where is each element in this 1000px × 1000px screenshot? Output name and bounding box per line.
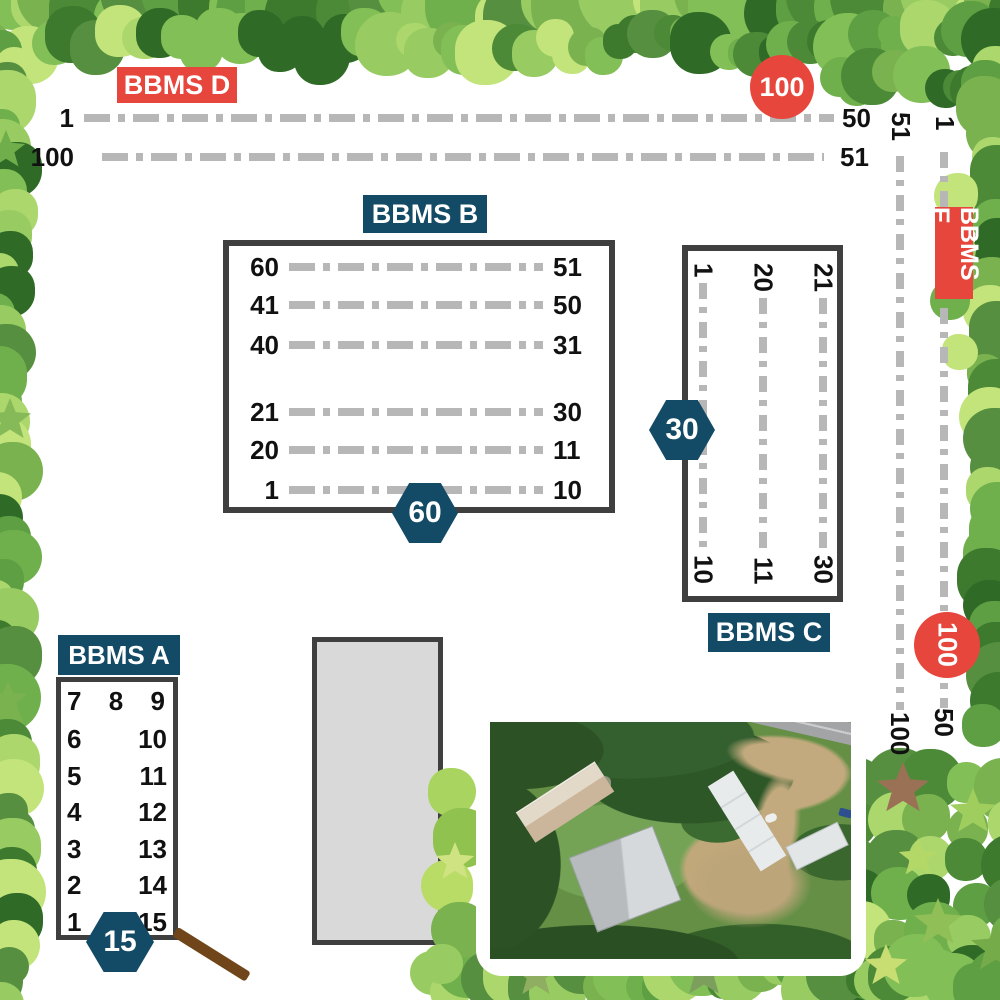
foliage-blob: [0, 0, 47, 30]
foliage-blob: [959, 387, 1000, 444]
foliage-blob: [475, 0, 532, 49]
foliage-plant-icon: [913, 898, 963, 948]
row-end-number: 30: [553, 397, 601, 428]
foliage-blob: [872, 50, 914, 92]
foliage-blob: [967, 354, 1000, 392]
bbms-d-row1-end: 50: [842, 104, 871, 132]
foliage-blob: [710, 34, 746, 70]
foliage-blob: [180, 29, 222, 71]
row-end-number: 11: [553, 435, 601, 466]
foliage-blob: [0, 378, 22, 426]
foliage-blob: [0, 982, 24, 1000]
foliage-blob: [813, 13, 878, 78]
bbms-a-top-row: 7 8 9: [67, 686, 165, 717]
aerial-barn: [516, 761, 614, 842]
foliage-blob: [0, 626, 42, 687]
row-end-number: 51: [553, 252, 601, 283]
plot-number: 11: [140, 761, 168, 792]
foliage-blob: [94, 0, 154, 49]
foliage-plant-icon: [864, 944, 908, 988]
foliage-blob: [348, 0, 423, 31]
foliage-blob: [883, 934, 946, 997]
bbms-d-row1-start: 1: [26, 104, 74, 132]
foliage-blob: [492, 24, 539, 71]
bbms-b-row: 40 31: [237, 331, 601, 359]
foliage-blob: [0, 21, 14, 79]
foliage-blob: [871, 987, 921, 1000]
aerial-photo: [490, 722, 851, 959]
foliage-blob: [895, 62, 924, 91]
foliage-plant-icon: [898, 838, 938, 878]
bbms-b-row: 20 11: [237, 436, 601, 464]
row-end-number: 50: [553, 290, 601, 321]
foliage-blob: [985, 989, 1000, 1000]
bbms-d-row2-line: [102, 153, 824, 161]
foliage-blob: [441, 25, 491, 75]
foliage-blob: [0, 818, 41, 876]
foliage-blob: [0, 559, 24, 603]
foliage-blob: [950, 65, 998, 113]
foliage-blob: [49, 0, 134, 56]
foliage-blob: [953, 883, 997, 927]
plot-number: 4: [67, 797, 81, 828]
foliage-blob: [433, 22, 470, 59]
foliage-blob: [0, 109, 20, 149]
foliage-blob: [209, 0, 263, 36]
foliage-blob: [838, 71, 873, 106]
foliage-blob: [215, 13, 265, 63]
plot-number: 3: [67, 834, 81, 865]
foliage-blob: [968, 338, 1000, 376]
foliage-blob: [968, 359, 1000, 420]
foliage-plant-icon: [970, 922, 1000, 974]
foliage-blob: [868, 950, 920, 1000]
foliage-blob: [969, 301, 1000, 362]
foliage-blob: [947, 762, 988, 803]
foliage-blob: [744, 0, 812, 46]
plot-number: 10: [138, 724, 167, 755]
foliage-blob: [909, 836, 953, 880]
foliage-blob: [238, 10, 285, 57]
foliage-blob: [423, 944, 463, 984]
column-end-number: 10: [688, 555, 719, 584]
foliage-blob: [820, 57, 860, 97]
bbms-d-row2-start: 100: [22, 143, 74, 171]
bbms-e-100-marker: 100: [914, 612, 980, 678]
bbms-e-col1-start: 51: [885, 112, 916, 141]
foliage-blob: [100, 0, 193, 35]
foliage-blob: [956, 76, 1000, 137]
foliage-blob: [278, 16, 325, 63]
foliage-blob: [0, 62, 27, 105]
foliage-blob: [0, 393, 30, 451]
foliage-plant-icon: [949, 788, 997, 836]
foliage-blob: [161, 15, 205, 59]
foliage-blob: [963, 408, 1000, 470]
foliage-blob: [355, 12, 419, 76]
foliage-blob: [947, 808, 988, 849]
column-start-number: 1: [688, 263, 719, 277]
row-start-number: 60: [237, 252, 279, 283]
plot-number: 7: [67, 686, 81, 717]
foliage-blob: [0, 620, 16, 659]
bbms-e-label: BBMS E: [935, 207, 973, 299]
aerial-main-building: [570, 827, 680, 931]
bbms-c-column: 21 30: [808, 263, 838, 584]
foliage-blob: [945, 838, 988, 881]
foliage-blob: [776, 0, 831, 37]
foliage-blob: [245, 0, 326, 49]
bbms-b-row: 60 51: [237, 253, 601, 281]
plot-number: 12: [138, 797, 167, 828]
foliage-blob: [878, 16, 909, 47]
plot-number: 9: [151, 686, 165, 717]
foliage-blob: [552, 36, 590, 74]
foliage-blob: [0, 859, 46, 927]
foliage-blob: [925, 69, 964, 108]
foliage-blob: [991, 914, 1000, 956]
plot-number: 5: [67, 761, 81, 792]
foliage-plant-icon: [0, 680, 28, 720]
foliage-blob: [627, 10, 675, 58]
foliage-blob: [988, 800, 1000, 847]
foliage-blob: [654, 15, 689, 50]
foliage-blob: [0, 920, 40, 969]
foliage-blob: [0, 664, 41, 731]
foliage-blob: [32, 20, 77, 65]
bbms-c-label: BBMS C: [708, 613, 830, 652]
foliage-blob: [902, 749, 962, 809]
foliage-blob: [0, 417, 31, 476]
foliage-blob: [122, 17, 164, 59]
foliage-blob: [0, 253, 19, 294]
foliage-blob: [0, 793, 28, 833]
foliage-blob: [983, 943, 1000, 1000]
foliage-blob: [401, 0, 479, 55]
foliage-blob: [0, 494, 23, 543]
row-start-number: 41: [237, 290, 279, 321]
foliage-blob: [640, 0, 721, 46]
column-end-number: 11: [748, 557, 779, 585]
bbms-a-right-column: 10 11 12 13 14 15: [138, 724, 167, 938]
foliage-blob: [0, 169, 27, 218]
foliage-blob: [568, 27, 608, 67]
foliage-blob: [0, 516, 31, 561]
foliage-blob: [195, 8, 244, 57]
foliage-blob: [903, 980, 968, 1000]
foliage-blob: [984, 877, 1000, 932]
foliage-blob: [603, 24, 638, 59]
foliage-blob: [674, 0, 749, 29]
foliage-blob: [0, 530, 42, 584]
foliage-blob: [512, 30, 558, 76]
foliage-blob: [45, 6, 102, 63]
foliage-blob: [947, 915, 991, 959]
foliage-blob: [430, 971, 470, 1000]
foliage-blob: [341, 8, 390, 57]
foliage-blob: [688, 0, 791, 53]
plot-number: 2: [67, 870, 81, 901]
bbms-b-row: 21 30: [237, 398, 601, 426]
foliage-blob: [616, 15, 654, 53]
foliage-blob: [943, 945, 997, 999]
foliage-blob: [1, 26, 59, 84]
foliage-blob: [966, 103, 1000, 161]
foliage-blob: [0, 893, 43, 949]
foliage-blob: [974, 71, 1000, 109]
foliage-blob: [983, 41, 1000, 91]
foliage-blob: [939, 979, 1000, 1000]
foliage-blob: [970, 145, 1000, 204]
row-line: [289, 263, 543, 271]
foliage-blob: [0, 266, 35, 317]
foliage-blob: [969, 504, 1000, 559]
foliage-blob: [962, 704, 1000, 748]
foliage-blob: [883, 0, 955, 48]
row-line: [289, 446, 543, 454]
foliage-blob: [907, 874, 950, 917]
aerial-vehicle: [838, 807, 851, 818]
foliage-blob: [0, 947, 29, 984]
plot-number: 13: [138, 834, 167, 865]
plot-number: 6: [67, 724, 81, 755]
foliage-blob: [970, 482, 1000, 535]
foliage-blob: [900, 952, 958, 1000]
foliage-blob: [0, 0, 22, 31]
foliage-blob: [396, 23, 432, 59]
foliage-blob: [970, 438, 1000, 494]
foliage-blob: [814, 0, 891, 44]
foliage-plant-icon: [0, 398, 32, 442]
bbms-d-row2-end: 51: [840, 143, 869, 171]
foliage-blob: [0, 210, 32, 257]
foliage-blob: [404, 28, 455, 79]
foliage-blob: [258, 25, 305, 72]
foliage-blob: [863, 946, 924, 1000]
plot-number: 1: [67, 907, 81, 938]
foliage-blob: [728, 38, 758, 68]
bbms-b-row: 41 50: [237, 291, 601, 319]
foliage-plant-icon: [876, 762, 930, 816]
foliage-blob: [967, 949, 1000, 1000]
column-line: [819, 298, 827, 549]
column-line: [759, 298, 767, 551]
foliage-blob: [0, 809, 35, 850]
foliage-blob: [0, 47, 35, 86]
row-end-number: 31: [553, 330, 601, 361]
foliage-blob: [0, 189, 38, 238]
foliage-blob: [902, 794, 950, 842]
foliage-blob: [972, 46, 1000, 89]
foliage-blob: [941, 1, 997, 57]
foliage-blob: [322, 14, 370, 62]
bbms-e-col2-end: 50: [928, 708, 959, 737]
foliage-blob: [981, 834, 1000, 897]
foliage-blob: [0, 951, 23, 1000]
foliage-blob: [216, 0, 296, 50]
foliage-blob: [0, 231, 33, 278]
bbms-b-label: BBMS B: [363, 195, 487, 233]
foliage-blob: [881, 17, 933, 69]
bbms-e-col2-start: 1: [929, 116, 960, 130]
foliage-blob: [943, 70, 978, 105]
foliage-blob: [0, 719, 32, 767]
foliage-blob: [0, 708, 24, 746]
bbms-e-100-marker-value: 100: [932, 622, 963, 667]
foliage-blob: [966, 467, 1000, 513]
foliage-blob: [578, 0, 672, 39]
foliage-blob: [585, 37, 623, 75]
foliage-blob: [264, 0, 369, 69]
foliage-blob: [830, 0, 931, 42]
foliage-blob: [900, 0, 958, 57]
row-start-number: 21: [237, 397, 279, 428]
foliage-blob: [17, 0, 103, 33]
foliage-blob: [11, 0, 67, 31]
foliage-blob: [967, 14, 1000, 66]
foliage-blob: [925, 953, 984, 1000]
foliage-blob: [0, 442, 43, 501]
foliage-blob: [957, 548, 1000, 611]
foliage-blob: [893, 46, 951, 104]
foliage-blob: [786, 0, 861, 34]
row-line: [289, 301, 543, 309]
foliage-blob: [0, 305, 26, 356]
bbms-d-row1-line: [84, 114, 834, 122]
bbms-a-left-column: 6 5 4 3 2 1: [67, 724, 81, 938]
foliage-blob: [865, 830, 926, 891]
foliage-blob: [0, 664, 27, 701]
foliage-blob: [961, 60, 1000, 110]
bbms-a-field: 7 8 9 6 5 4 3 2 1 10 11 12 13 14 15: [56, 677, 178, 940]
foliage-blob: [483, 0, 568, 64]
bbms-b-field: 60 51 41 50 40 31 21 30 20 11 1 10: [223, 240, 615, 513]
foliage-blob: [868, 792, 921, 845]
foliage-blob: [136, 8, 186, 58]
foliage-blob: [536, 19, 574, 57]
row-start-number: 1: [237, 475, 279, 506]
foliage-blob: [0, 580, 14, 619]
foliage-blob: [178, 0, 244, 35]
row-line: [289, 408, 543, 416]
access-path: [172, 927, 251, 982]
foliage-blob: [922, 950, 959, 987]
foliage-blob: [974, 758, 1000, 820]
building-outline: [312, 637, 443, 945]
column-end-number: 30: [808, 555, 839, 584]
column-start-number: 21: [808, 263, 839, 292]
bbms-e-col1-end: 100: [884, 712, 915, 755]
foliage-blob: [871, 867, 924, 920]
foliage-blob: [953, 963, 1000, 1000]
row-end-number: 10: [553, 475, 601, 506]
column-start-number: 20: [748, 263, 779, 292]
foliage-blob: [900, 0, 991, 33]
bbms-d-label: BBMS D: [117, 67, 237, 103]
foliage-blob: [425, 0, 515, 47]
foliage-blob: [904, 902, 964, 962]
foliage-blob: [670, 17, 704, 51]
foliage-blob: [410, 951, 454, 995]
foliage-blob: [455, 20, 520, 85]
site-map: BBMS D 1 50 100 51 100 51 1 BBMS E 100 1…: [0, 0, 1000, 1000]
bbms-c-column: 20 11: [748, 263, 778, 584]
foliage-blob: [0, 324, 36, 380]
foliage-blob: [963, 527, 1000, 583]
foliage-blob: [985, 9, 1000, 69]
foliage-blob: [961, 8, 1000, 72]
foliage-blob: [521, 0, 594, 34]
foliage-blob: [934, 18, 972, 56]
foliage-blob: [807, 20, 848, 61]
foliage-blob: [953, 0, 1000, 46]
foliage-blob: [531, 0, 638, 53]
row-line: [289, 341, 543, 349]
foliage-blob: [633, 0, 688, 25]
foliage-blob: [0, 588, 39, 644]
foliage-blob: [0, 759, 44, 817]
bbms-d-100-marker: 100: [750, 55, 814, 119]
foliage-blob: [841, 48, 899, 106]
foliage-blob: [970, 672, 1000, 730]
foliage-blob: [963, 0, 1000, 25]
foliage-blob: [377, 0, 450, 23]
foliage-blob: [848, 10, 897, 59]
bbms-e-col1-line: [896, 156, 904, 710]
plot-number: 8: [109, 686, 123, 717]
foliage-blob: [988, 0, 1000, 60]
foliage-blob: [972, 137, 1000, 177]
bbms-a-label: BBMS A: [58, 635, 180, 675]
foliage-blob: [0, 847, 37, 896]
foliage-blob: [0, 346, 27, 406]
foliage-blob: [0, 32, 34, 80]
row-start-number: 40: [237, 330, 279, 361]
foliage-blob: [0, 293, 15, 333]
foliage-blob: [865, 748, 930, 813]
foliage-blob: [316, 0, 395, 50]
foliage-blob: [670, 12, 732, 74]
foliage-blob: [0, 472, 22, 521]
aerial-photo-frame: [476, 705, 866, 976]
foliage-blob: [874, 920, 914, 960]
foliage-blob: [0, 30, 22, 70]
foliage-blob: [141, 0, 222, 32]
plot-number: 14: [138, 870, 167, 901]
row-start-number: 20: [237, 435, 279, 466]
foliage-blob: [0, 734, 40, 792]
foliage-blob: [95, 5, 148, 58]
foliage-blob: [294, 28, 350, 84]
